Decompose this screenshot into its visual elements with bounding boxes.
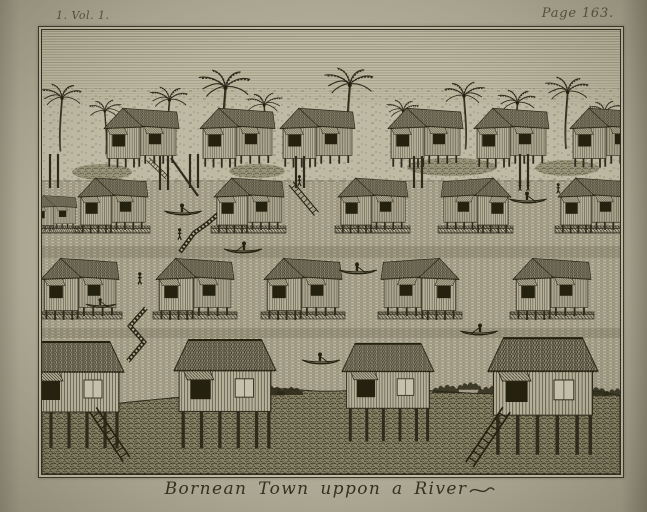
plate-frame	[41, 29, 621, 475]
house-platform	[75, 226, 150, 233]
house-platform	[510, 312, 594, 319]
scrub-patch	[407, 158, 497, 176]
engraving-plate	[38, 26, 624, 478]
page-number-label: Page 163.	[542, 6, 614, 21]
volume-label: 1. Vol. 1.	[56, 9, 110, 22]
house-platform	[438, 226, 513, 233]
house-platform	[261, 312, 345, 319]
house-platform	[378, 312, 462, 319]
scrub-patch	[72, 164, 132, 180]
water-shade-upper	[42, 246, 620, 258]
engraving-scene	[42, 30, 620, 474]
plate-caption: Bornean Town uppon a River	[38, 479, 622, 499]
scrub-patch	[229, 164, 285, 178]
scanned-book-page: { "page": { "vol_label": "1. Vol. 1.", "…	[0, 0, 647, 512]
scrub-patch	[535, 160, 599, 176]
caption-text: Bornean Town uppon a River	[165, 479, 468, 499]
caption-flourish	[469, 483, 495, 497]
house-platform	[555, 226, 620, 233]
water-shade-lower	[42, 328, 620, 338]
house-platform	[335, 226, 410, 233]
house-platform	[211, 226, 286, 233]
house-platform	[153, 312, 237, 319]
house-platform	[42, 312, 122, 319]
